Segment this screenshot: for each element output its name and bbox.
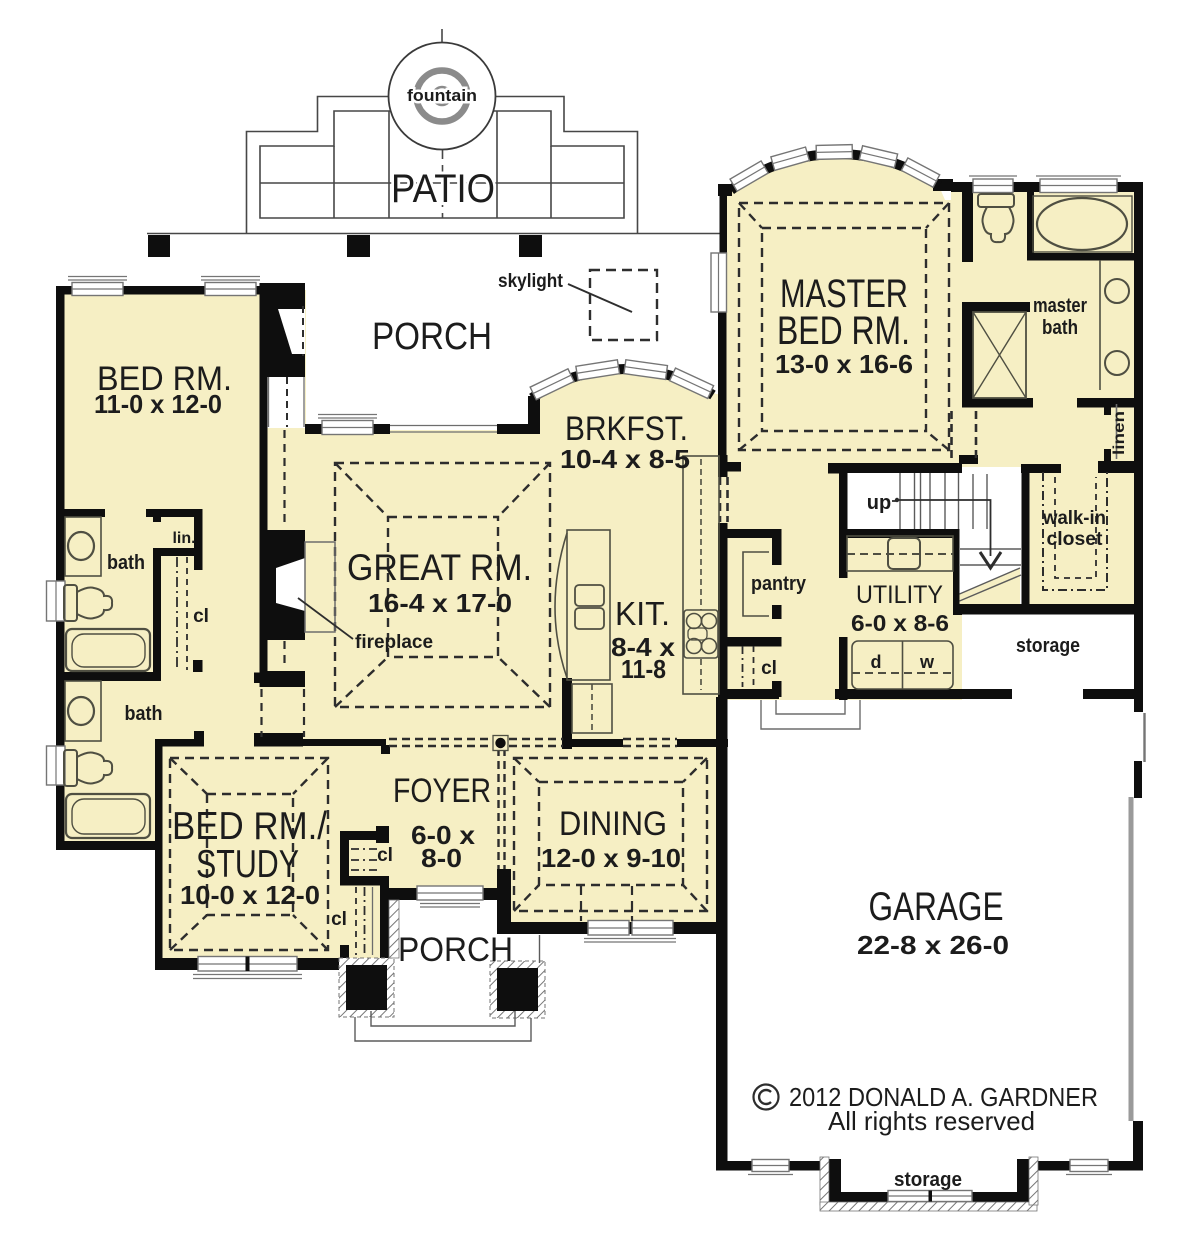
svg-text:linen: linen bbox=[1111, 411, 1128, 455]
svg-text:16-4 x 17-0: 16-4 x 17-0 bbox=[368, 588, 512, 618]
svg-text:10-0 x 12-0: 10-0 x 12-0 bbox=[180, 880, 320, 910]
svg-text:BRKFST.: BRKFST. bbox=[565, 410, 688, 448]
svg-text:GARAGE: GARAGE bbox=[869, 885, 1004, 929]
svg-text:skylight: skylight bbox=[498, 271, 564, 292]
svg-text:BED RM./: BED RM./ bbox=[172, 805, 327, 848]
svg-text:11-0 x 12-0: 11-0 x 12-0 bbox=[94, 389, 222, 419]
svg-text:PORCH: PORCH bbox=[372, 316, 492, 358]
svg-text:cl: cl bbox=[193, 606, 209, 627]
svg-text:walk-in: walk-in bbox=[1042, 508, 1106, 529]
svg-text:DINING: DINING bbox=[559, 805, 667, 843]
svg-text:KIT.: KIT. bbox=[615, 595, 670, 632]
svg-text:PATIO: PATIO bbox=[391, 167, 495, 211]
svg-text:fountain: fountain bbox=[407, 86, 477, 105]
svg-text:closet: closet bbox=[1047, 529, 1104, 550]
svg-text:GREAT RM.: GREAT RM. bbox=[347, 547, 532, 588]
svg-text:8-0: 8-0 bbox=[421, 843, 462, 873]
svg-text:PORCH: PORCH bbox=[398, 931, 513, 969]
svg-text:pantry: pantry bbox=[751, 573, 807, 595]
svg-text:BED RM.: BED RM. bbox=[777, 309, 910, 353]
svg-text:All rights reserved: All rights reserved bbox=[828, 1106, 1035, 1136]
svg-text:master: master bbox=[1033, 295, 1087, 317]
svg-text:storage: storage bbox=[894, 1169, 962, 1191]
svg-text:12-0 x 9-10: 12-0 x 9-10 bbox=[541, 843, 681, 873]
svg-text:22-8 x 26-0: 22-8 x 26-0 bbox=[857, 930, 1009, 960]
svg-text:cl: cl bbox=[761, 658, 777, 679]
svg-text:6-0 x 8-6: 6-0 x 8-6 bbox=[851, 610, 949, 636]
svg-text:10-4 x 8-5: 10-4 x 8-5 bbox=[560, 444, 690, 474]
svg-text:cl: cl bbox=[331, 909, 347, 930]
svg-text:up: up bbox=[867, 492, 891, 514]
svg-text:storage: storage bbox=[1016, 635, 1080, 657]
svg-text:bath: bath bbox=[125, 703, 163, 725]
svg-text:lin.: lin. bbox=[172, 530, 195, 547]
svg-text:w: w bbox=[919, 652, 935, 672]
svg-text:fireplace: fireplace bbox=[355, 632, 433, 653]
svg-text:bath: bath bbox=[1042, 317, 1078, 339]
svg-text:d: d bbox=[871, 652, 882, 672]
svg-text:UTILITY: UTILITY bbox=[856, 581, 943, 609]
svg-text:11-8: 11-8 bbox=[621, 654, 666, 684]
svg-text:cl: cl bbox=[377, 845, 393, 866]
svg-text:13-0 x 16-6: 13-0 x 16-6 bbox=[775, 349, 913, 379]
svg-text:FOYER: FOYER bbox=[393, 772, 491, 810]
svg-text:bath: bath bbox=[107, 552, 145, 574]
